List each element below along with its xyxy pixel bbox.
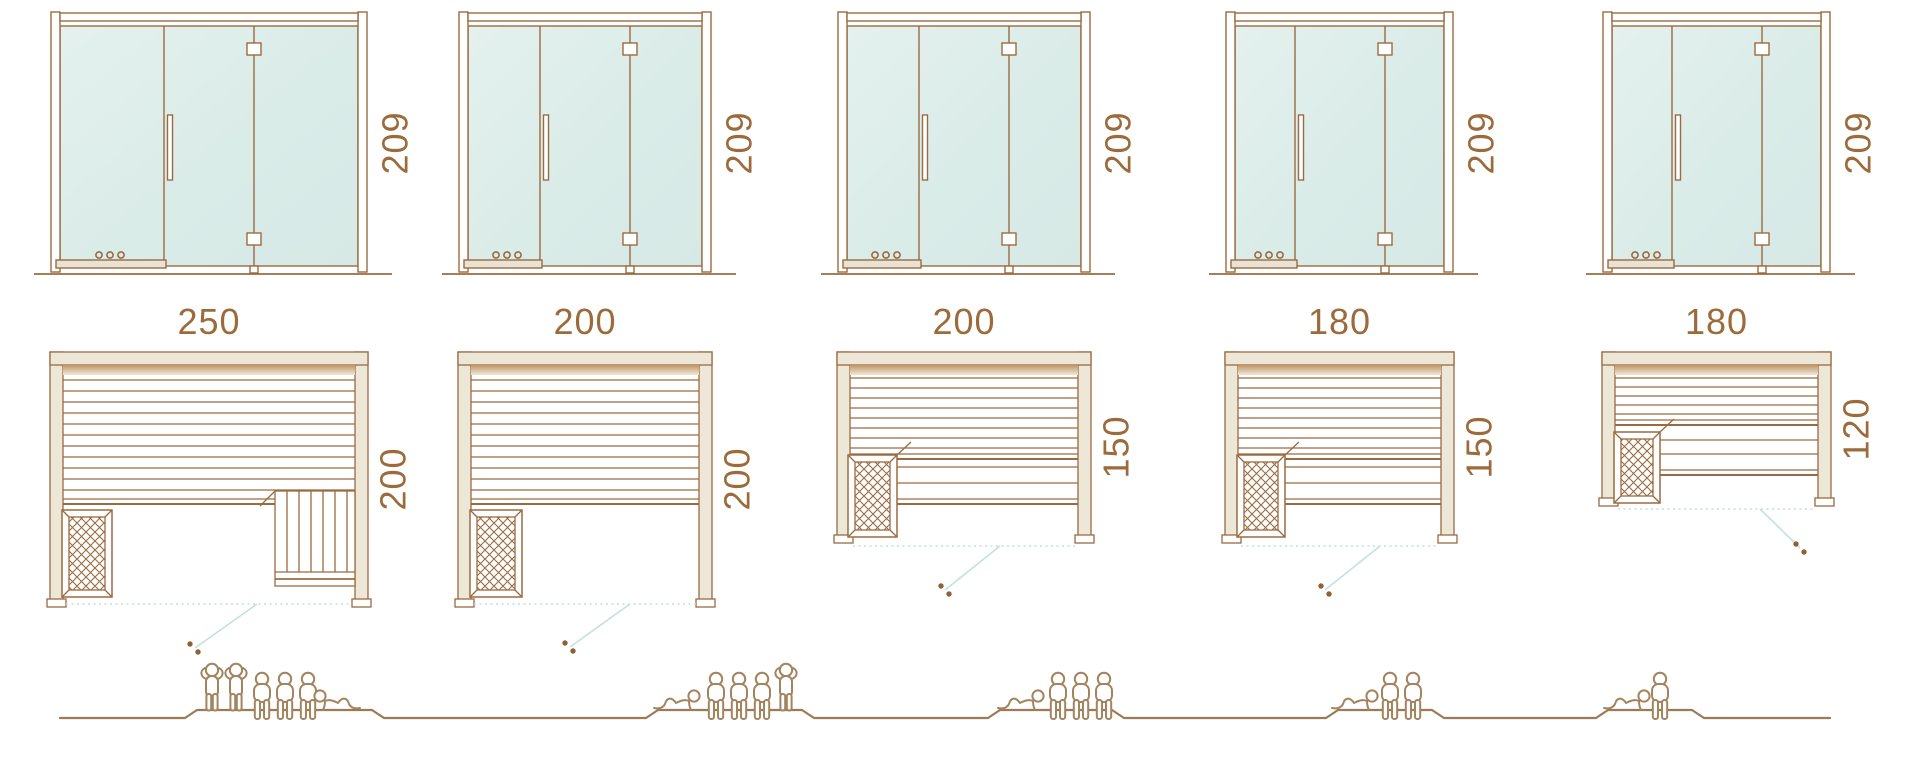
front-elevation-drawing [1225, 10, 1454, 276]
door-hinge-icon [1378, 43, 1392, 55]
threshold [56, 260, 166, 268]
door-hinge-icon [1002, 233, 1016, 245]
person-sitting-icon [254, 673, 270, 719]
door-hinge-icon [1755, 43, 1769, 55]
glass-front [1235, 26, 1444, 266]
person-sitting-icon [754, 673, 770, 719]
depth-dimension: 200 [372, 352, 416, 606]
bench-planks [471, 380, 699, 504]
person-sitting-icon [708, 673, 724, 719]
height-dimension: 209 [1460, 10, 1504, 276]
person-sitting-icon [1096, 673, 1112, 719]
person-lying-icon [1604, 690, 1650, 710]
width-dimension: 180 [1602, 300, 1831, 344]
width-dimension: 200 [837, 300, 1091, 344]
door-swing-line [1325, 546, 1380, 590]
door-handle-icon [923, 115, 928, 180]
door-hinge-icon [1378, 233, 1392, 245]
person-sitting-icon [731, 673, 747, 719]
height-dimension: 209 [1837, 10, 1881, 276]
door-handle-icon [544, 115, 549, 180]
ground-line [60, 710, 1830, 718]
person-sitting-icon [277, 673, 293, 719]
person-lying-icon [998, 690, 1044, 710]
height-dimension: 209 [718, 10, 762, 276]
height-dimension: 209 [1097, 10, 1141, 276]
front-elevation-drawing [1602, 10, 1831, 276]
door-swing-line [945, 546, 1000, 590]
depth-dimension: 120 [1835, 352, 1879, 505]
width-dimension: 200 [458, 300, 712, 344]
door-hinge-icon [623, 233, 637, 245]
person-lying-icon [654, 690, 700, 710]
depth-dimension: 150 [1095, 352, 1139, 542]
person-standing-icon [201, 664, 222, 711]
floor-plan-drawing [1225, 352, 1454, 604]
door-hinge-icon [1755, 233, 1769, 245]
depth-dimension: 200 [716, 352, 760, 606]
floor-plan-drawing [837, 352, 1091, 604]
heater-icon [470, 510, 522, 597]
door-swing-line [195, 604, 257, 648]
heater-icon [62, 510, 112, 597]
depth-dimension: 150 [1458, 352, 1502, 542]
door-hinge-icon [247, 43, 261, 55]
heater-icon [848, 455, 897, 537]
step-bench [260, 491, 355, 586]
person-standing-icon [775, 664, 796, 711]
glass-front [847, 26, 1081, 266]
person-sitting-icon [1652, 673, 1668, 719]
front-elevation-drawing [837, 10, 1091, 276]
heater-icon [1237, 455, 1285, 537]
front-elevation-drawing [50, 10, 368, 276]
door-hinge-icon [247, 233, 261, 245]
threshold [843, 260, 921, 268]
capacity-group-4-three-persons [1332, 673, 1421, 719]
door-handle-icon [168, 115, 173, 180]
capacity-group-3-four-persons [998, 673, 1112, 719]
width-dimension: 180 [1225, 300, 1454, 344]
door-swing-line [570, 604, 630, 647]
threshold [464, 260, 542, 268]
capacity-group-5-two-persons [1604, 673, 1668, 719]
floor-plan-drawing [458, 352, 712, 668]
bench-planks [1238, 378, 1441, 459]
door-swing-line [1760, 509, 1800, 548]
heater-icon [1614, 432, 1660, 503]
width-dimension: 250 [50, 300, 368, 344]
person-sitting-icon [1405, 673, 1421, 719]
person-lying-icon [1332, 690, 1378, 710]
floor-plan-drawing [1602, 352, 1831, 567]
floor-plan-drawing [50, 352, 368, 668]
height-dimension: 209 [374, 10, 418, 276]
bench-planks [1615, 378, 1818, 425]
person-lying-icon [314, 690, 360, 710]
lower-bench [1285, 442, 1441, 504]
glass-front [60, 26, 358, 266]
glass-front [468, 26, 702, 266]
lower-bench [1660, 419, 1818, 475]
door-hinge-icon [623, 43, 637, 55]
bench-planks [63, 380, 355, 504]
lower-bench [897, 442, 1078, 504]
person-sitting-icon [1050, 673, 1066, 719]
front-elevation-drawing [458, 10, 712, 276]
door-handle-icon [1676, 115, 1681, 180]
bench-planks [850, 378, 1078, 459]
person-sitting-icon [1382, 673, 1398, 719]
glass-front [1612, 26, 1821, 266]
threshold [1608, 260, 1674, 268]
door-handle-icon [1299, 115, 1304, 180]
person-sitting-icon [1073, 673, 1089, 719]
threshold [1231, 260, 1297, 268]
door-hinge-icon [1002, 43, 1016, 55]
person-standing-icon [225, 664, 246, 711]
capacity-row [40, 648, 1880, 764]
sauna-size-diagram: 209 250 [0, 0, 1920, 764]
